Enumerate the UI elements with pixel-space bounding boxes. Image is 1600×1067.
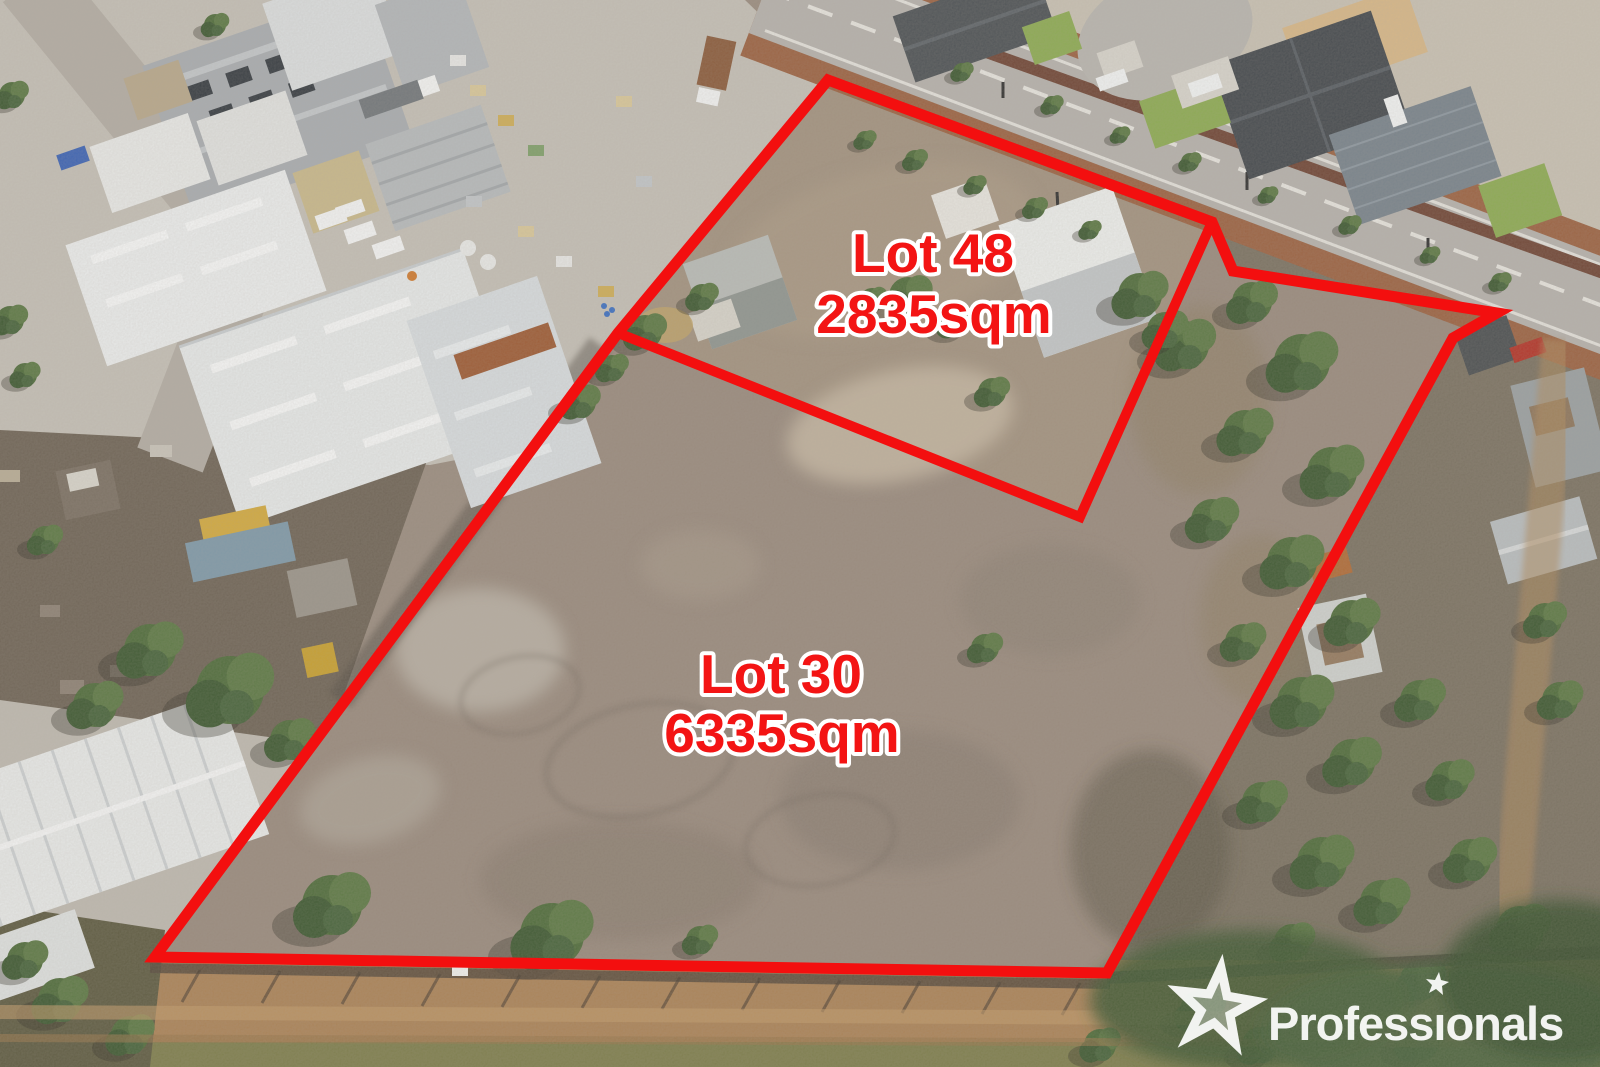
- lot30-name-label: Lot 30: [700, 643, 862, 705]
- lot48-area-label: 2835sqm: [816, 283, 1051, 345]
- aerial-photo: Lot 48 2835sqm Lot 30 6335sqm Professıon…: [0, 0, 1600, 1067]
- professionals-wordmark: Professıonals: [1268, 997, 1563, 1050]
- photo-grain: [0, 0, 1600, 1067]
- lot30-area-label: 6335sqm: [664, 702, 899, 764]
- lot48-name-label: Lot 48: [852, 222, 1014, 284]
- aerial-photo-canvas: Lot 48 2835sqm Lot 30 6335sqm Professıon…: [0, 0, 1600, 1067]
